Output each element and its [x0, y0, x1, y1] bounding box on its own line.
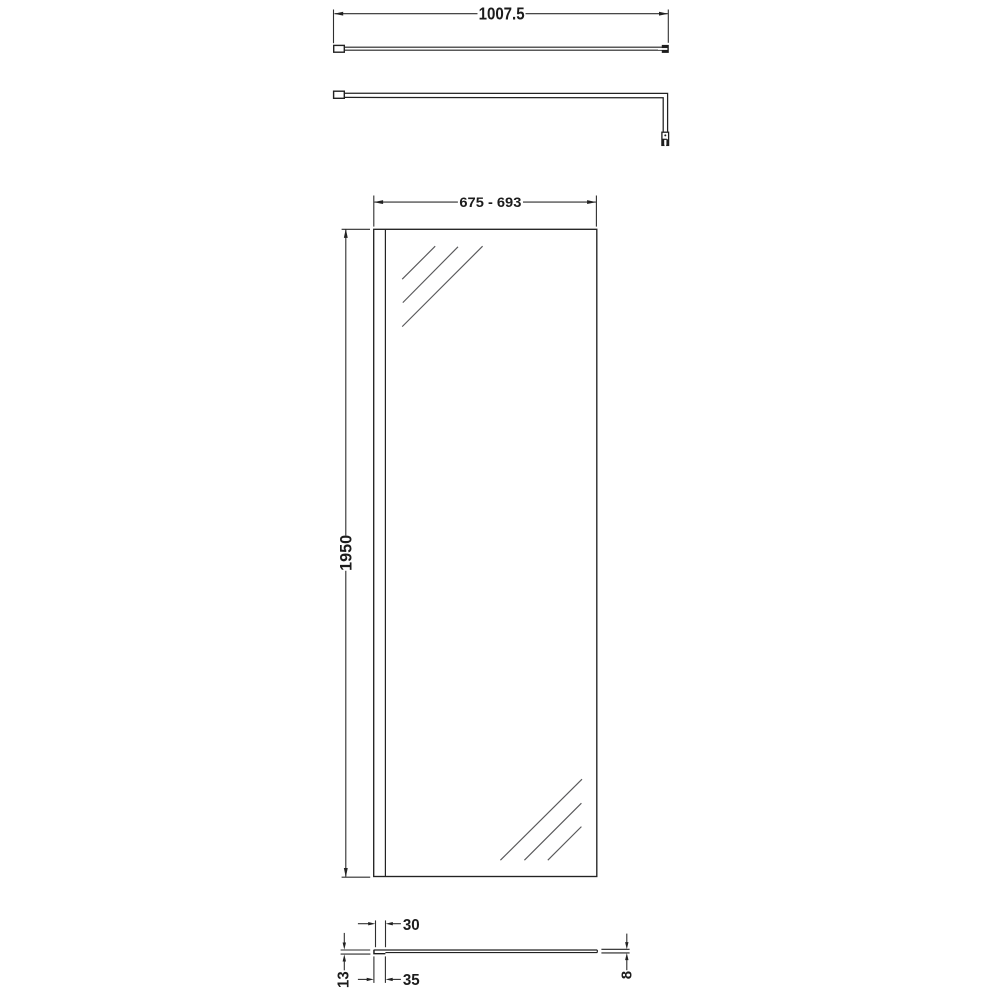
svg-text:1007.5: 1007.5	[479, 4, 525, 24]
svg-text:8: 8	[619, 971, 636, 979]
svg-text:1950: 1950	[338, 535, 356, 571]
svg-text:35: 35	[403, 972, 420, 989]
svg-text:30: 30	[403, 917, 420, 934]
svg-text:675 - 693: 675 - 693	[459, 195, 521, 210]
svg-text:13: 13	[336, 971, 353, 988]
